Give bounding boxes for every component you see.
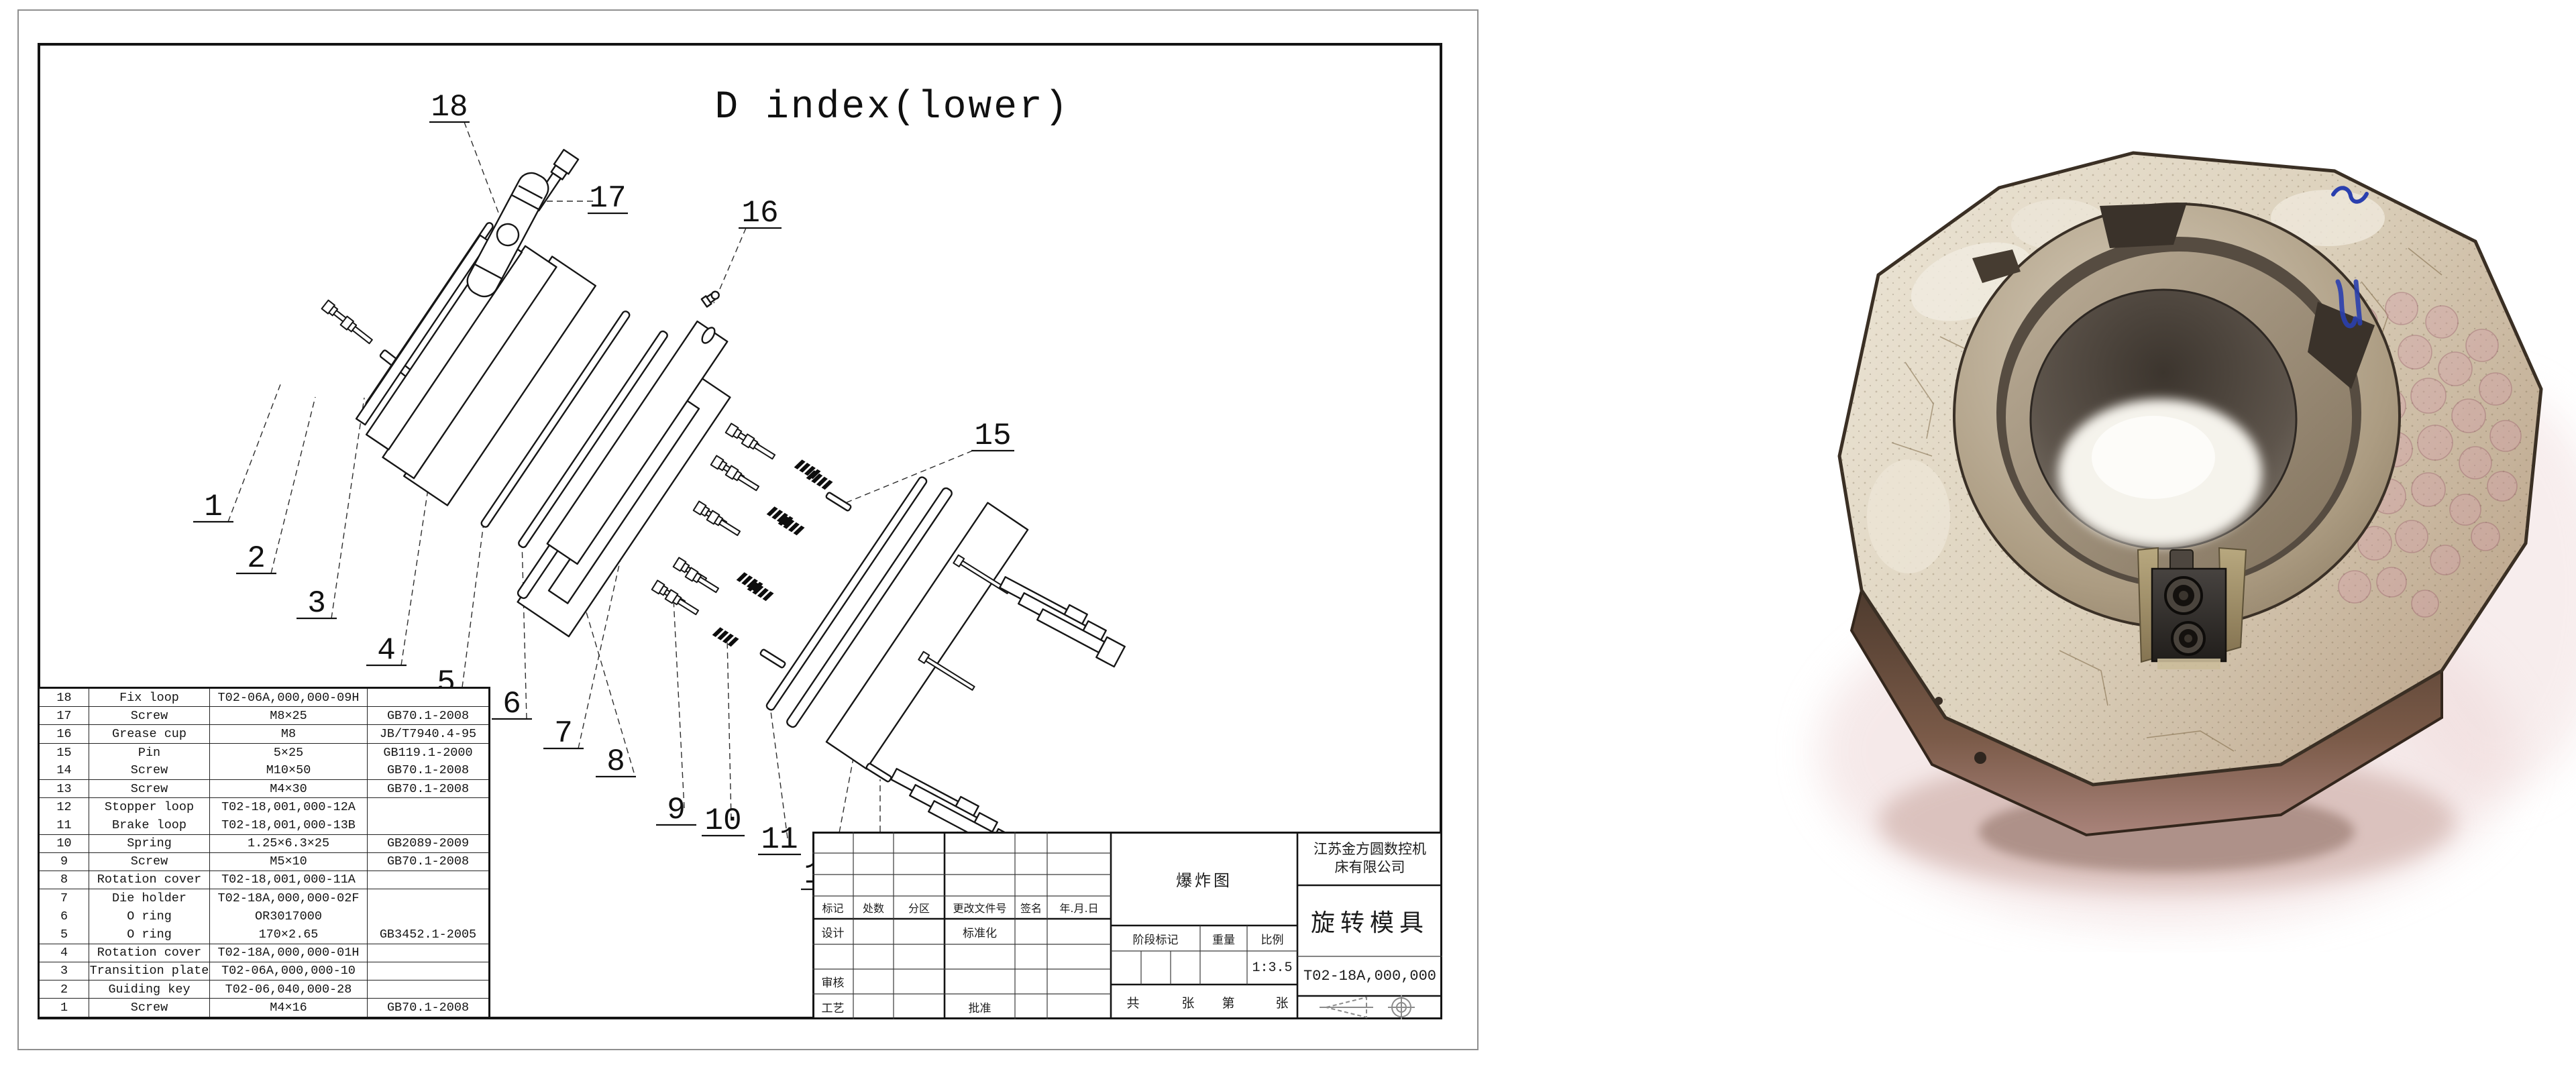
parts-table-cell — [368, 871, 488, 889]
tb-process-label: 工艺 — [812, 994, 853, 1019]
callout-10: 10 — [704, 803, 741, 838]
callout-1: 1 — [204, 490, 223, 524]
tb-ratio-label: 比例 — [1247, 926, 1297, 951]
parts-table-cell: 3 — [40, 962, 89, 980]
parts-table-cell — [368, 889, 488, 907]
tb-stage-mark-label: 阶段标记 — [1111, 926, 1200, 951]
parts-table-cell: M10×50 — [210, 762, 368, 780]
parts-table-cell: M4×16 — [210, 999, 368, 1017]
callout-15: 15 — [974, 418, 1011, 453]
part-13-pin — [866, 763, 892, 783]
parts-table-cell: 6 — [40, 907, 89, 926]
callout-7: 7 — [554, 716, 573, 751]
parts-table-cell: Pin — [89, 744, 210, 762]
parts-table-cell: 1 — [40, 999, 89, 1017]
tb-product-name: 旋转模具 — [1297, 885, 1442, 956]
parts-table-cell: T02-18,001,000-12A — [210, 798, 368, 816]
parts-table-cell: 18 — [40, 689, 89, 707]
callout-9: 9 — [667, 793, 686, 828]
callout-6: 6 — [502, 687, 521, 722]
parts-table-cell: Rotation cover — [89, 944, 210, 962]
tb-drawing-number: T02-18A,000,000 — [1297, 956, 1442, 996]
parts-table-cell: GB70.1-2008 — [368, 707, 488, 725]
parts-table-cell: Grease cup — [89, 725, 210, 743]
part-10-springs — [712, 458, 833, 648]
parts-table-cell: JB/T7940.4-95 — [368, 725, 488, 743]
ring-notch-top — [2100, 203, 2187, 248]
callout-2: 2 — [247, 541, 266, 576]
parts-table-cell: M4×30 — [210, 780, 368, 798]
parts-table-cell — [368, 944, 488, 962]
parts-table-cell: 15 — [40, 744, 89, 762]
parts-table-cell: Guiding key — [89, 980, 210, 999]
parts-table-cell: T02-06,040,000-28 — [210, 980, 368, 999]
parts-table-cell: Screw — [89, 999, 210, 1017]
tb-rev-count: 处数 — [853, 896, 894, 919]
parts-table-cell: Fix loop — [89, 689, 210, 707]
parts-table-cell: 17 — [40, 707, 89, 725]
parts-table-cell — [368, 962, 488, 980]
parts-table-cell: 12 — [40, 798, 89, 816]
parts-table-cell: 10 — [40, 835, 89, 853]
parts-table-cell: Brake loop — [89, 816, 210, 834]
parts-table-cell: Screw — [89, 762, 210, 780]
socket-screw — [2165, 577, 2202, 614]
callout-8: 8 — [606, 744, 625, 779]
parts-table-cell: Screw — [89, 707, 210, 725]
tb-rev-doc-no: 更改文件号 — [945, 896, 1015, 919]
parts-table-cell: 170×2.65 — [210, 926, 368, 944]
parts-table-cell — [368, 689, 488, 707]
callout-18: 18 — [431, 90, 468, 125]
parts-table-cell — [368, 798, 488, 816]
product-photo — [1771, 80, 2576, 952]
parts-table-cell: Rotation cover — [89, 871, 210, 889]
parts-table-cell: 1.25×6.3×25 — [210, 835, 368, 853]
parts-table-cell: T02-18A,000,000-02F — [210, 889, 368, 907]
callout-4: 4 — [377, 633, 396, 668]
parts-table-cell: GB70.1-2008 — [368, 999, 488, 1017]
flange-hole — [1974, 752, 1986, 764]
parts-table-cell: Die holder — [89, 889, 210, 907]
parts-table-cell: 16 — [40, 725, 89, 743]
tb-check-label: 审核 — [812, 969, 853, 994]
socket-screw-2 — [2172, 622, 2204, 655]
parts-table-cell: GB70.1-2008 — [368, 853, 488, 871]
parts-table-cell — [368, 816, 488, 834]
parts-table-cell — [368, 980, 488, 999]
callout-3: 3 — [307, 586, 326, 621]
parts-table-cell: M8 — [210, 725, 368, 743]
parts-table-cell: GB70.1-2008 — [368, 762, 488, 780]
parts-table: 18Fix loopT02-06A,000,000-09H17ScrewM8×2… — [38, 687, 490, 1019]
tb-sheet-word: 张 — [1175, 985, 1201, 1019]
parts-table-cell: 4 — [40, 944, 89, 962]
tb-rev-zone: 分区 — [894, 896, 945, 919]
parts-table-cell: T02-06A,000,000-10 — [210, 962, 368, 980]
tb-scale-value: 1:3.5 — [1247, 951, 1297, 985]
parts-table-cell — [368, 907, 488, 926]
parts-table-cell: 5×25 — [210, 744, 368, 762]
parts-table-cell: O ring — [89, 907, 210, 926]
callout-16: 16 — [741, 196, 778, 231]
parts-table-cell: T02-18,001,000-11A — [210, 871, 368, 889]
title-block: 标记 处数 分区 更改文件号 签名 年.月.日 设计 标准化 审核 工艺 批准 … — [812, 832, 1442, 1019]
parts-table-cell: Screw — [89, 853, 210, 871]
parts-table-cell: Spring — [89, 835, 210, 853]
part-16-grease-cup — [702, 289, 721, 306]
parts-table-cell: 2 — [40, 980, 89, 999]
pin — [760, 649, 786, 669]
tb-view-name: 爆炸图 — [1111, 832, 1297, 926]
parts-table-cell: Stopper loop — [89, 798, 210, 816]
parts-table-cell: GB2089-2009 — [368, 835, 488, 853]
parts-table-cell: 7 — [40, 889, 89, 907]
parts-table-cell: T02-18,001,000-13B — [210, 816, 368, 834]
parts-table-cell: T02-06A,000,000-09H — [210, 689, 368, 707]
callout-17: 17 — [589, 181, 626, 216]
parts-table-cell: M5×10 — [210, 853, 368, 871]
tb-company: 江苏金方圆数控机床有限公司 — [1297, 832, 1442, 885]
parts-table-cell: M8×25 — [210, 707, 368, 725]
tb-sheet-total-label: 共 — [1120, 985, 1146, 1019]
tb-approve-label: 批准 — [945, 994, 1015, 1019]
callout-11: 11 — [761, 822, 798, 857]
parts-table-cell: 14 — [40, 762, 89, 780]
parts-table-cell: Screw — [89, 780, 210, 798]
tb-sheet-no-label: 第 — [1215, 985, 1242, 1019]
parts-table-cell: 11 — [40, 816, 89, 834]
parts-table-cell: 9 — [40, 853, 89, 871]
tb-rev-mark: 标记 — [812, 896, 853, 919]
tb-weight-label: 重量 — [1200, 926, 1247, 951]
flange-hole-small — [1935, 697, 1943, 705]
tb-sheet-word2: 张 — [1269, 985, 1295, 1019]
tb-design-label: 设计 — [812, 919, 853, 944]
parts-table-cell: O ring — [89, 926, 210, 944]
screenshot-root: D index(lower) — [0, 0, 2576, 1065]
parts-table-cell: T02-18A,000,000-01H — [210, 944, 368, 962]
parts-table-cell: 13 — [40, 780, 89, 798]
parts-table-cell: OR3017000 — [210, 907, 368, 926]
tb-rev-signature: 签名 — [1015, 896, 1047, 919]
parts-table-cell: 5 — [40, 926, 89, 944]
parts-table-cell: GB3452.1-2005 — [368, 926, 488, 944]
parts-table-cell: GB70.1-2008 — [368, 780, 488, 798]
parts-table-cell: GB119.1-2000 — [368, 744, 488, 762]
parts-table-cell: Transition plate — [89, 962, 210, 980]
bore — [2031, 290, 2296, 549]
tb-rev-date: 年.月.日 — [1047, 896, 1111, 919]
tb-standardization-label: 标准化 — [945, 919, 1015, 944]
parts-table-cell: 8 — [40, 871, 89, 889]
